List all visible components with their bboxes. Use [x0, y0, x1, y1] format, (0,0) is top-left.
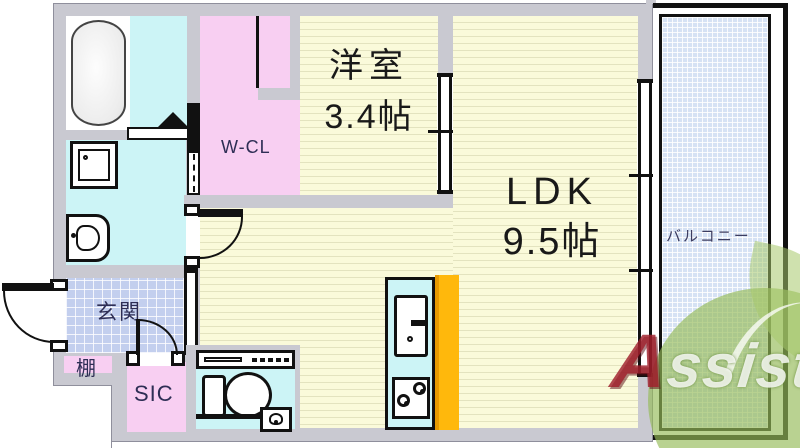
ldk-size: 9.5帖: [462, 222, 642, 264]
bath-door: [127, 127, 189, 140]
partition-cap: [184, 268, 198, 273]
wcl-wall-stub: [258, 88, 290, 100]
floorplan-canvas: W-CL 洋室 3.4帖 LDK 9.5帖 玄関 棚 SIC: [0, 0, 800, 448]
front-door-opening: [53, 284, 66, 346]
toilet-tank-icon: [202, 375, 226, 417]
footprint-notch: [53, 385, 112, 448]
front-door-panel: [2, 283, 54, 291]
sliding-door-western-ldk: [437, 73, 454, 194]
bathtub-icon: [71, 20, 126, 126]
balcony-window: [637, 79, 654, 377]
kitchen-sink-icon: [394, 295, 428, 357]
hanger-pole-icon: [256, 16, 259, 88]
front-door-arc: [3, 291, 54, 343]
wcl-label: W-CL: [221, 137, 271, 158]
kitchen-counter: [435, 275, 459, 430]
western-room-size: 3.4帖: [296, 99, 442, 136]
ldk-name: LDK: [462, 172, 642, 214]
toilet-sink-icon: [260, 407, 292, 432]
ldk-label: LDK 9.5帖: [462, 172, 642, 264]
entrance-step-partition: [184, 268, 198, 355]
bath-door-swing-icon: [158, 112, 188, 127]
accordion-door: [187, 151, 200, 195]
toilet-divider: [196, 414, 264, 419]
wall-band: [184, 195, 453, 208]
sic-label: SIC: [134, 381, 174, 407]
partition-wall-top: [438, 16, 453, 75]
kitchen-stove-icon: [392, 377, 430, 419]
room-walk-in-closet: [200, 16, 300, 197]
washing-machine-icon: [70, 141, 118, 189]
shelf-label: 棚: [76, 352, 96, 381]
door-frame: [184, 256, 200, 268]
bath-door-jamb: [187, 103, 200, 153]
washbasin-icon: [66, 214, 110, 262]
washroom-door-panel: [198, 209, 243, 217]
balcony-label: バルコニー: [666, 225, 751, 246]
toilet-shelf: [196, 350, 295, 369]
room-balcony: [659, 14, 771, 431]
western-room-label: 洋室 3.4帖: [296, 48, 442, 137]
sic-door-panel: [136, 319, 140, 355]
western-room-name: 洋室: [296, 48, 442, 85]
kitchen-unit: [385, 277, 435, 430]
